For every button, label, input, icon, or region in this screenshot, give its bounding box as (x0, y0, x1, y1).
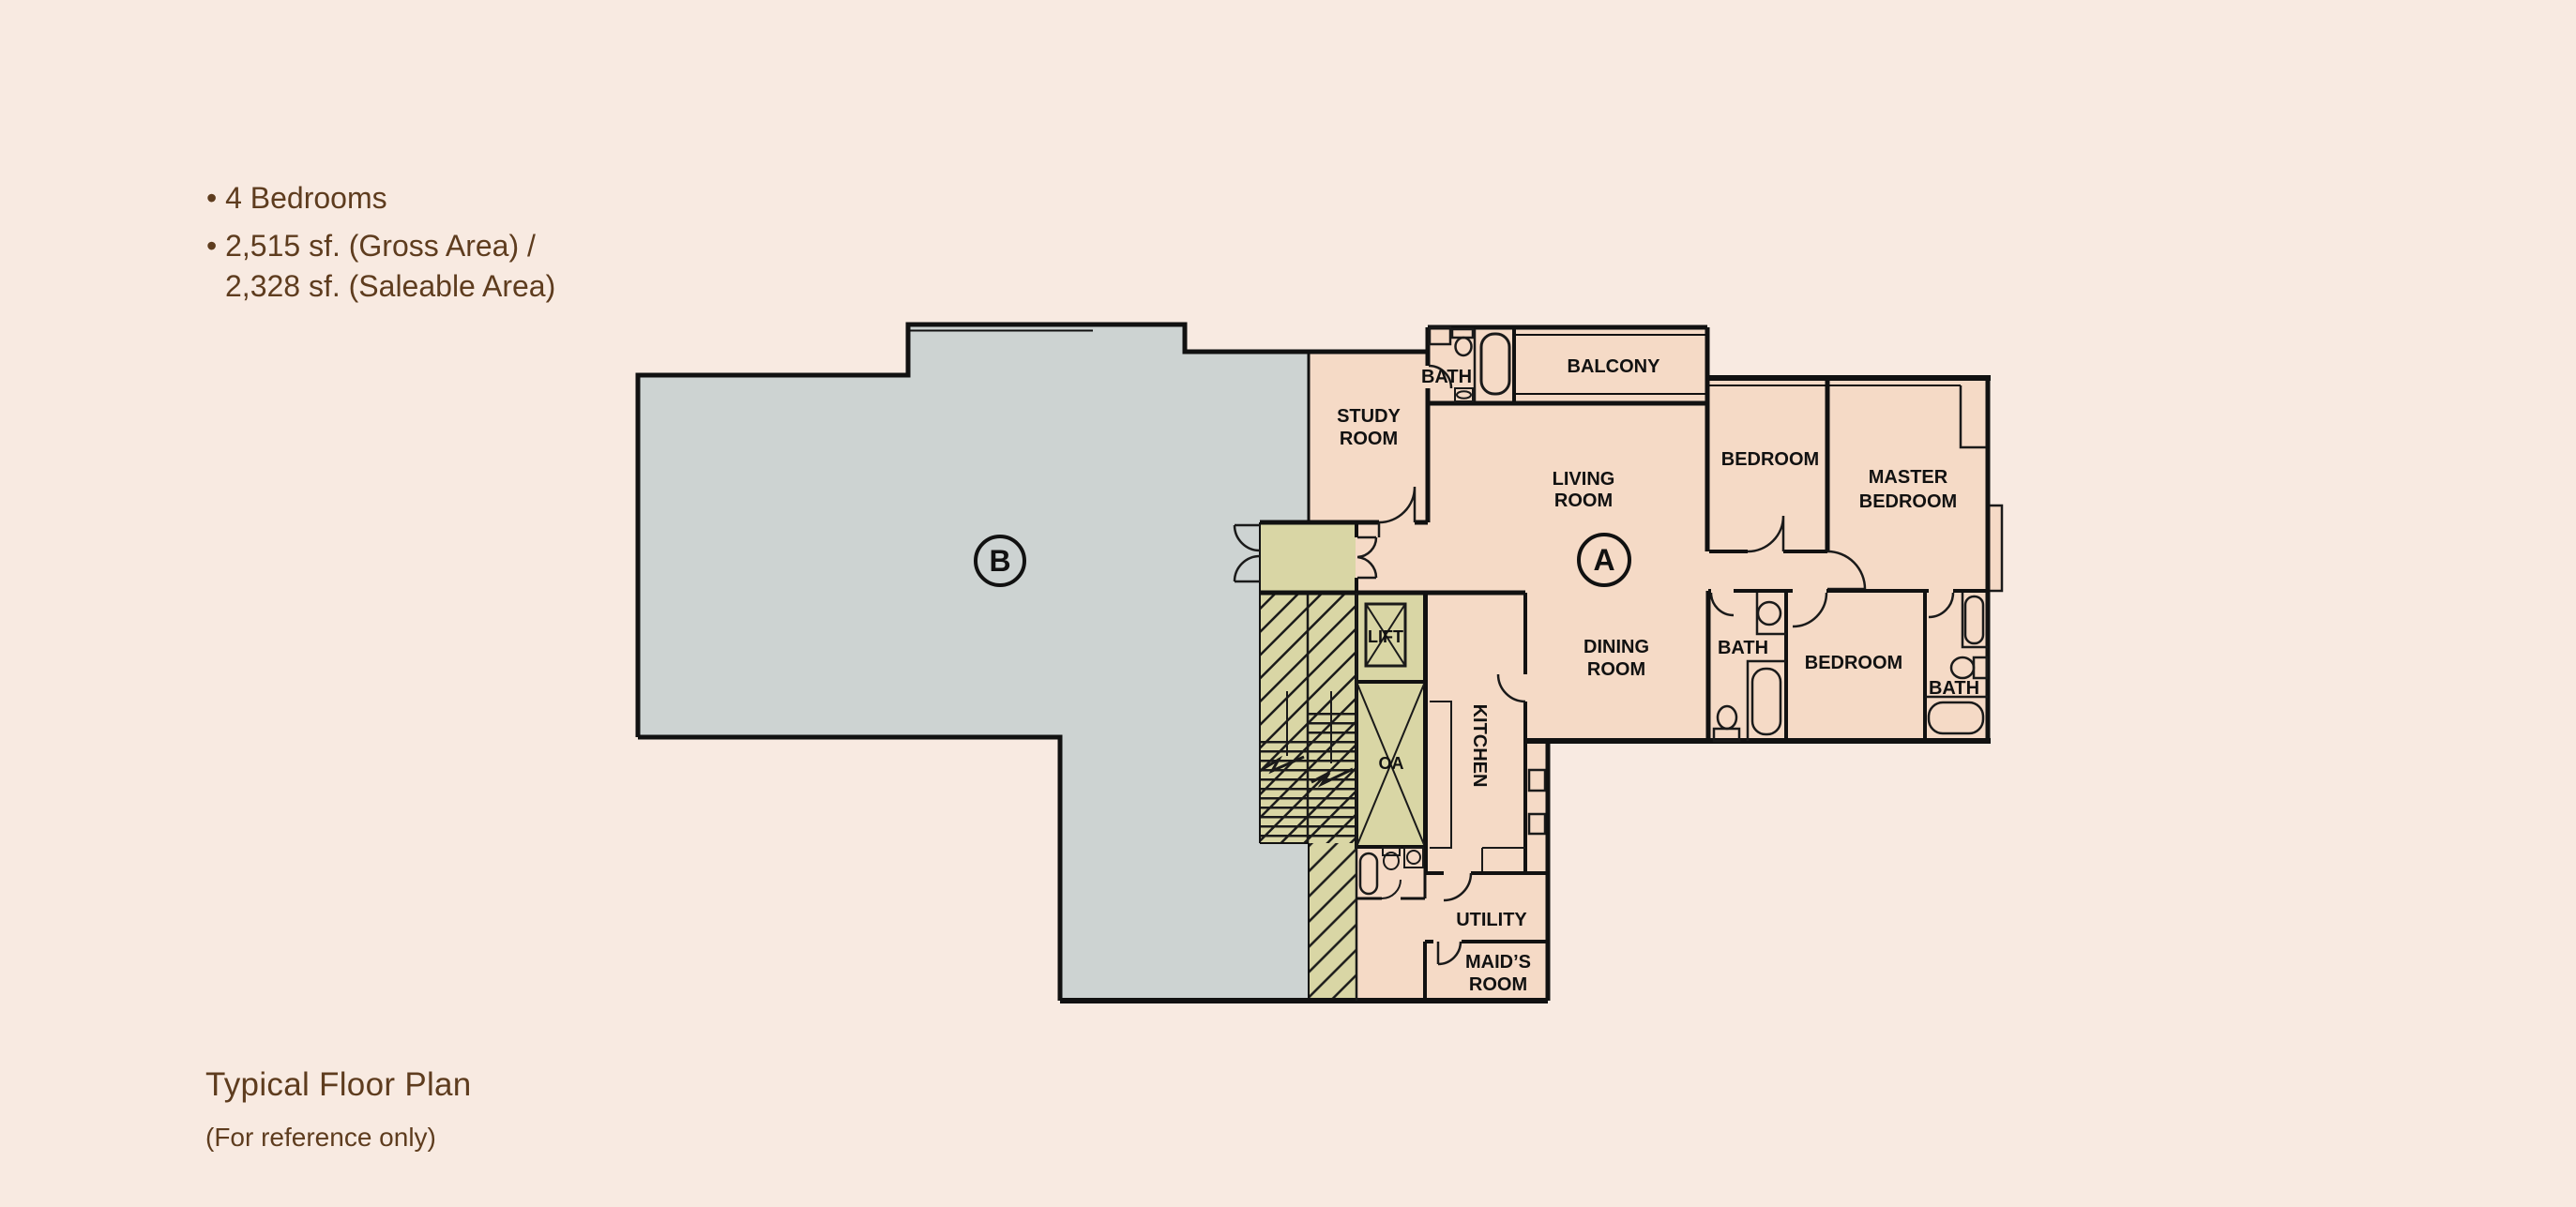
svg-text:A: A (1593, 543, 1614, 577)
svg-text:B: B (989, 544, 1010, 578)
svg-text:BALCONY: BALCONY (1568, 356, 1661, 377)
svg-text:DINING: DINING (1583, 637, 1649, 657)
svg-text:2,328 sf. (Saleable Area): 2,328 sf. (Saleable Area) (225, 269, 555, 303)
svg-text:BATH: BATH (1421, 367, 1472, 387)
svg-text:STUDY: STUDY (1337, 406, 1401, 427)
svg-text:MASTER: MASTER (1869, 467, 1948, 488)
svg-text:MAID’S: MAID’S (1465, 952, 1531, 973)
svg-text:ROOM: ROOM (1587, 659, 1645, 680)
svg-text:BATH: BATH (1718, 638, 1768, 658)
svg-text:LIFT: LIFT (1368, 627, 1403, 646)
svg-text:UTILITY: UTILITY (1456, 910, 1527, 930)
svg-text:(For reference only): (For reference only) (205, 1123, 436, 1152)
svg-text:LIVING: LIVING (1553, 469, 1615, 490)
svg-text:ROOM: ROOM (1340, 429, 1398, 449)
svg-text:ROOM: ROOM (1469, 974, 1527, 995)
svg-text:BEDROOM: BEDROOM (1805, 653, 1902, 673)
svg-text:BATH: BATH (1929, 678, 1979, 699)
svg-text:OA: OA (1379, 754, 1404, 773)
svg-text:BEDROOM: BEDROOM (1859, 491, 1957, 512)
svg-text:• 2,515 sf. (Gross Area) /: • 2,515 sf. (Gross Area) / (206, 229, 536, 263)
svg-text:Typical Floor Plan: Typical Floor Plan (205, 1066, 472, 1103)
svg-text:BEDROOM: BEDROOM (1721, 449, 1819, 470)
svg-text:• 4 Bedrooms: • 4 Bedrooms (206, 181, 387, 215)
svg-text:KITCHEN: KITCHEN (1469, 704, 1490, 788)
svg-text:ROOM: ROOM (1554, 490, 1613, 511)
